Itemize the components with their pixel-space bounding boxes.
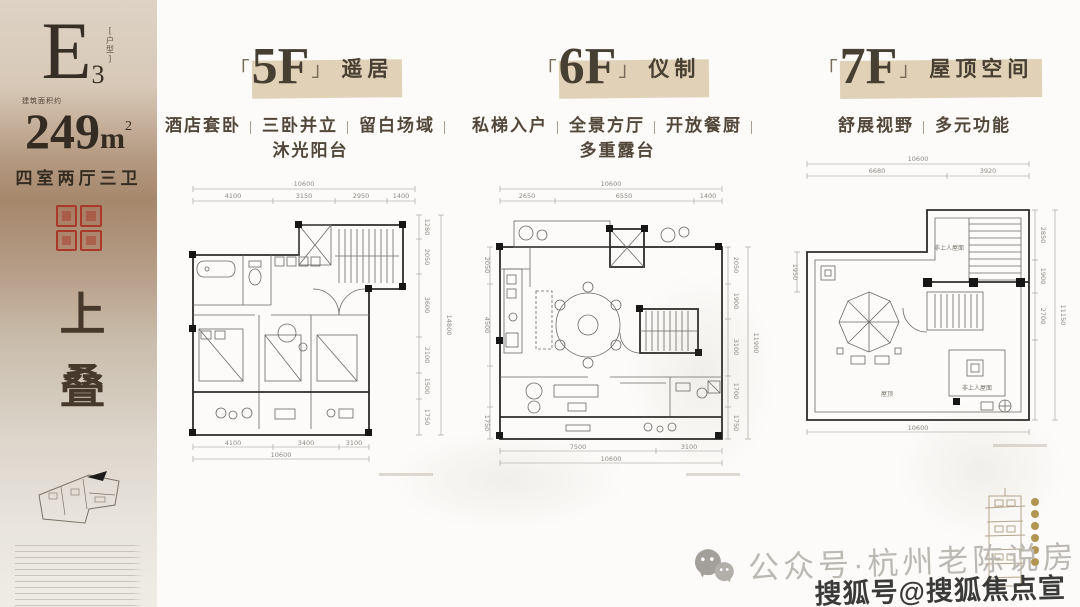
dim-label: 2950 bbox=[352, 192, 369, 200]
bracket-open: 「 bbox=[535, 53, 559, 82]
dim-label: 4100 bbox=[224, 439, 241, 447]
seal-cell bbox=[56, 205, 78, 227]
feature-item: 三卧并立 bbox=[262, 116, 338, 135]
elevator-shaft bbox=[299, 225, 331, 265]
floor-subtitle: 屋顶空间 bbox=[929, 53, 1033, 91]
kitchen bbox=[500, 247, 552, 353]
feature-list-6f: 私梯入户|全景方厅|开放餐厨|多重露台 bbox=[464, 111, 771, 161]
seal-cell bbox=[80, 205, 102, 227]
staircase bbox=[903, 292, 983, 332]
stack-type-label: 上叠 bbox=[46, 277, 112, 447]
dim-label: 14800 bbox=[445, 314, 453, 335]
dim-label: 1950 bbox=[791, 264, 799, 281]
feature-item: 留白场域 bbox=[359, 116, 435, 135]
main-area: 「 5F 」 遥居 酒店套卧|三卧并立|留白场域|沐光阳台 10600 410 bbox=[157, 0, 1080, 607]
dim-label: 3100 bbox=[345, 439, 362, 447]
room-count-label: 四室两厅三卫 bbox=[0, 164, 157, 189]
unit-tag: [户型] bbox=[105, 26, 116, 64]
floor-plan-5f: 10600 4100 3150 2950 1400 bbox=[163, 177, 459, 487]
dim-label: 6680 bbox=[868, 167, 885, 175]
bathroom-fixtures bbox=[197, 261, 261, 285]
door-arc bbox=[620, 333, 640, 353]
dim-top: 10600 4100 3150 2950 1400 bbox=[193, 180, 415, 204]
dim-label: 2700 bbox=[1039, 308, 1047, 325]
bracket-close: 」 bbox=[309, 53, 333, 82]
outer-wall bbox=[193, 225, 403, 435]
unit-code: E 3 [户型] bbox=[0, 12, 157, 90]
dim-label: 4500 bbox=[483, 317, 491, 334]
roof-area-label: 非上人屋面 bbox=[933, 244, 963, 252]
roof-label: 屋顶 bbox=[880, 391, 892, 398]
dim-top: 10600 6680 3920 bbox=[807, 155, 1029, 179]
door-arc bbox=[903, 308, 927, 332]
feature-divider: | bbox=[922, 119, 927, 135]
dim-bottom: 4100 3400 3100 10600 bbox=[193, 439, 369, 462]
entry-door-arc bbox=[313, 289, 339, 315]
seal-cell bbox=[56, 230, 78, 252]
dim-label: 2050 bbox=[732, 257, 740, 274]
dim-label: 4100 bbox=[224, 192, 241, 200]
dim-left: 1950 bbox=[791, 252, 800, 292]
feature-divider: | bbox=[249, 119, 254, 135]
patio-umbrella bbox=[837, 292, 901, 364]
floor-column-6f: 「 6F 」 仪制 私梯入户|全景方厅|开放餐厨|多重露台 10600 2650 bbox=[464, 44, 771, 487]
area-value-row: 249 m 2 bbox=[0, 106, 157, 156]
parapet-inner-line bbox=[815, 218, 1021, 412]
feature-item: 酒店套卧 bbox=[165, 116, 241, 135]
bracket-open: 「 bbox=[228, 53, 252, 82]
dim-label: 3920 bbox=[979, 167, 996, 175]
feature-list-5f: 酒店套卧|三卧并立|留白场域|沐光阳台 bbox=[157, 111, 464, 161]
feature-divider: | bbox=[750, 119, 755, 135]
feature-item: 全景方厅 bbox=[569, 116, 645, 135]
seal-cell bbox=[80, 230, 102, 252]
dim-label: 11150 bbox=[1059, 304, 1067, 325]
bracket-open: 「 bbox=[816, 53, 840, 82]
dim-label: 1400 bbox=[392, 192, 409, 200]
elevator-shaft bbox=[610, 229, 644, 267]
feature-item: 多元功能 bbox=[935, 116, 1011, 135]
area-superscript: 2 bbox=[125, 120, 132, 134]
roof-terrace bbox=[514, 221, 689, 247]
dim-label: 6550 bbox=[615, 192, 632, 200]
dim-label: 3400 bbox=[297, 439, 314, 447]
poster-canvas: E 3 [户型] 建筑面积约 249 m 2 四室两厅三卫 上叠 bbox=[0, 0, 1080, 607]
interior-walls bbox=[193, 255, 369, 429]
plan-caption bbox=[686, 473, 740, 476]
north-arrow-icon bbox=[87, 471, 107, 481]
feature-item: 私梯入户 bbox=[472, 116, 548, 135]
feature-item: 多重露台 bbox=[580, 141, 656, 160]
staircase bbox=[620, 309, 698, 353]
dim-label: 1280 bbox=[423, 219, 431, 236]
dim-label: 1500 bbox=[423, 378, 431, 395]
floor-number: 7F bbox=[840, 44, 898, 91]
dim-label: 10600 bbox=[907, 424, 928, 432]
unit-key-plan bbox=[31, 465, 127, 529]
feature-item: 舒展视野 bbox=[838, 116, 914, 135]
unit-letter: E bbox=[41, 12, 91, 90]
staircase bbox=[335, 229, 399, 283]
dim-right: 2850 1900 2700 11150 bbox=[1032, 210, 1067, 420]
wechat-icon bbox=[691, 547, 736, 587]
balcony-decor bbox=[566, 423, 676, 432]
bracket-close: 」 bbox=[616, 53, 640, 82]
floor-subtitle: 遥居 bbox=[341, 53, 393, 91]
dim-label: 10600 bbox=[270, 451, 291, 459]
floor-number: 6F bbox=[559, 44, 617, 91]
floor-column-5f: 「 5F 」 遥居 酒店套卧|三卧并立|留白场域|沐光阳台 10600 410 bbox=[157, 44, 464, 487]
outer-wall bbox=[807, 210, 1029, 420]
sohu-watermark-text: 搜狐号@搜狐焦点宣城站 bbox=[814, 566, 1080, 607]
floor-column-7f: 「 7F 」 屋顶空间 舒展视野|多元功能 10600 6680 3920 bbox=[771, 44, 1078, 487]
disclaimer-text-block bbox=[15, 545, 143, 607]
dim-left: 2050 4500 1750 bbox=[483, 247, 493, 439]
dim-top: 10600 2650 6550 1400 bbox=[500, 180, 722, 204]
dim-label: 1700 bbox=[732, 383, 740, 400]
floor-header-6f: 「 6F 」 仪制 bbox=[535, 44, 701, 91]
dim-label: 2650 bbox=[518, 192, 535, 200]
dim-right: 1280 2050 3600 2100 1500 1750 14800 bbox=[416, 215, 453, 435]
floor-subtitle: 仪制 bbox=[648, 53, 700, 91]
dim-label: 1900 bbox=[1039, 268, 1047, 285]
furniture bbox=[199, 324, 357, 381]
dim-label: 1750 bbox=[423, 409, 431, 426]
wall-columns bbox=[189, 221, 406, 436]
dim-label: 3150 bbox=[295, 192, 312, 200]
dim-label: 10600 bbox=[907, 155, 928, 163]
area-value: 249 bbox=[25, 106, 100, 156]
feature-item: 开放餐厨 bbox=[666, 116, 742, 135]
roof-area-label: 非上人屋面 bbox=[961, 384, 991, 392]
floor-plan-7f: 10600 6680 3920 非上人屋面 bbox=[777, 152, 1073, 462]
floor-plan-6f: 10600 2650 6550 1400 bbox=[470, 177, 766, 487]
dim-right: 2050 1900 3100 1700 1750 11900 bbox=[725, 247, 760, 439]
dim-label: 2050 bbox=[483, 257, 491, 274]
dim-label: 1400 bbox=[699, 192, 716, 200]
dim-label: 10600 bbox=[600, 455, 621, 463]
equipment bbox=[981, 400, 1011, 412]
dim-label: 7500 bbox=[569, 443, 586, 451]
plan-caption bbox=[993, 444, 1047, 447]
red-seal-stamp bbox=[56, 205, 102, 251]
living-furniture bbox=[526, 383, 666, 413]
plan-caption bbox=[379, 473, 433, 476]
dim-label: 2100 bbox=[423, 347, 431, 364]
unit-number: 3 bbox=[92, 60, 105, 90]
dim-label: 10600 bbox=[600, 180, 621, 188]
entry-door-arc bbox=[339, 289, 365, 315]
dining-table bbox=[555, 282, 621, 368]
bathroom-fixtures bbox=[676, 381, 720, 398]
dim-label: 3100 bbox=[732, 339, 740, 356]
balcony-decor bbox=[216, 408, 353, 419]
dim-bottom: 7500 3100 10600 bbox=[500, 443, 722, 466]
sidebar: E 3 [户型] 建筑面积约 249 m 2 四室两厅三卫 上叠 bbox=[0, 0, 157, 607]
dim-label: 1900 bbox=[732, 293, 740, 310]
dim-label: 2050 bbox=[423, 249, 431, 266]
floor-columns: 「 5F 」 遥居 酒店套卧|三卧并立|留白场域|沐光阳台 10600 410 bbox=[157, 0, 1080, 487]
feature-divider: | bbox=[556, 119, 561, 135]
floor-header-7f: 「 7F 」 屋顶空间 bbox=[816, 44, 1034, 91]
feature-divider: | bbox=[346, 119, 351, 135]
dim-label: 1750 bbox=[732, 415, 740, 432]
floor-header-5f: 「 5F 」 遥居 bbox=[228, 44, 394, 91]
bracket-close: 」 bbox=[897, 53, 921, 82]
feature-list-7f: 舒展视野|多元功能 bbox=[771, 111, 1078, 136]
feature-divider: | bbox=[653, 119, 658, 135]
dim-label: 3600 bbox=[423, 297, 431, 314]
dim-label: 3100 bbox=[680, 443, 697, 451]
area-unit: m bbox=[100, 124, 125, 154]
dim-label: 10600 bbox=[293, 180, 314, 188]
feature-divider: | bbox=[443, 119, 448, 135]
floor-number: 5F bbox=[252, 44, 310, 91]
dim-label: 1750 bbox=[483, 415, 491, 432]
feature-item: 沐光阳台 bbox=[273, 141, 349, 160]
dim-bottom: 10600 bbox=[807, 424, 1029, 435]
corner-post bbox=[821, 266, 835, 280]
dim-label: 11900 bbox=[752, 332, 760, 353]
dim-label: 2850 bbox=[1039, 227, 1047, 244]
